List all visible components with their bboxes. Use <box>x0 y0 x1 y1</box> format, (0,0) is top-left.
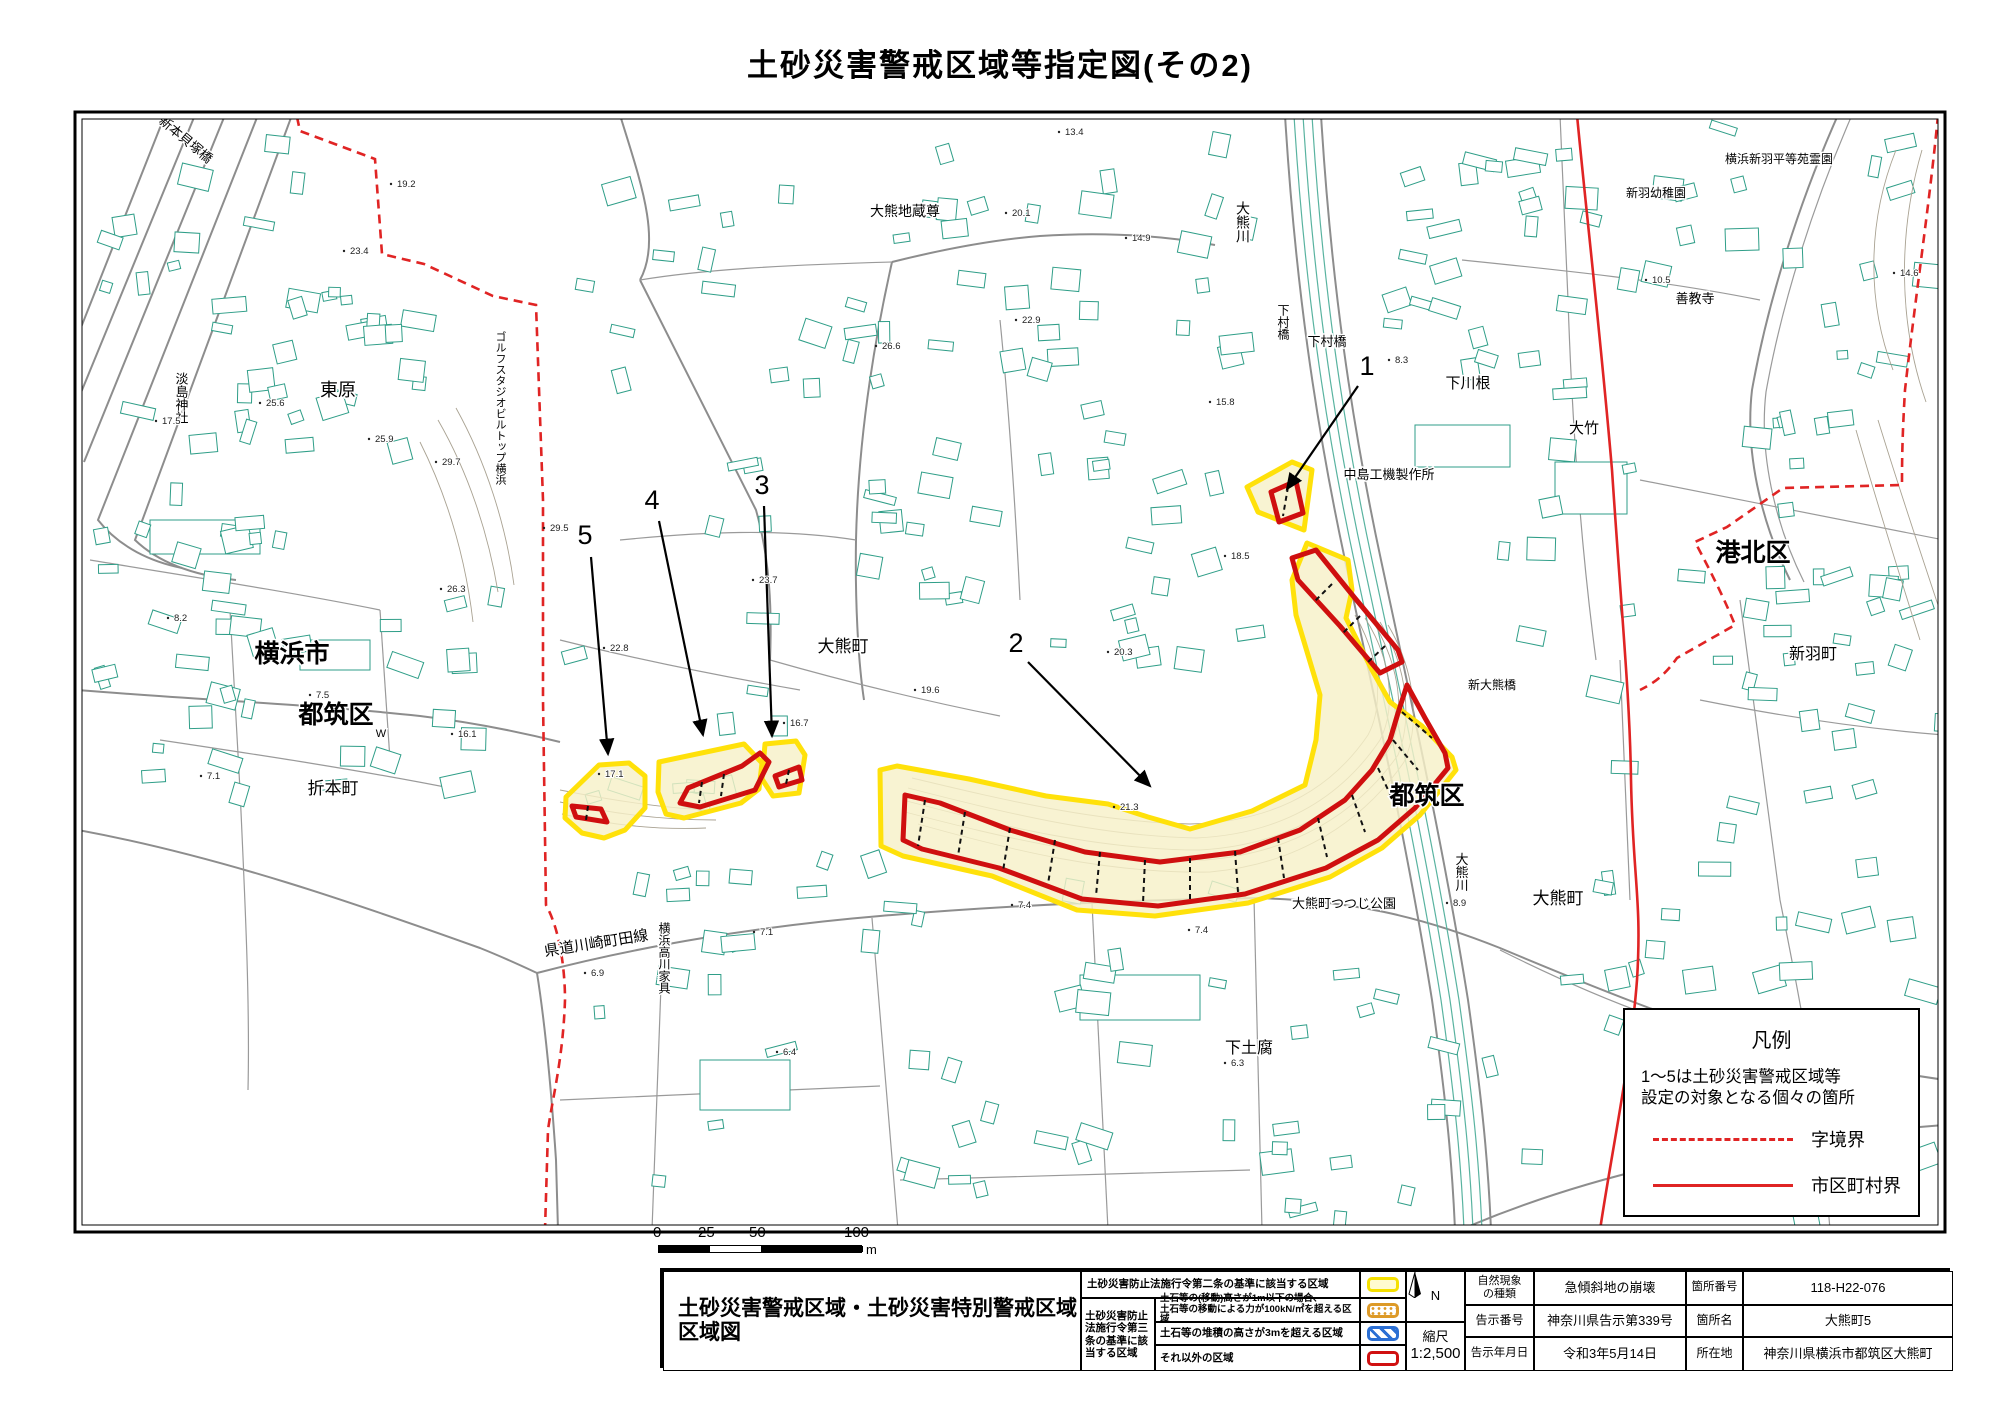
spot-height-label: 6.9 <box>591 968 604 979</box>
spot-height-label: 16.7 <box>790 718 809 729</box>
spot-height-label: 13.4 <box>1065 127 1084 138</box>
map-label: 下土腐 <box>1225 1039 1273 1057</box>
spot-height-label: 8.9 <box>1453 898 1466 909</box>
swatch-red-cell <box>1360 1345 1406 1371</box>
notice-date-value-cell: 令和3年5月14日 <box>1534 1337 1686 1371</box>
spot-height-label: 17.5 <box>162 416 181 427</box>
spot-height-label: 26.3 <box>447 584 466 595</box>
location-label-cell: 所在地 <box>1686 1337 1743 1371</box>
map-label: W <box>376 728 387 740</box>
map-label: 下川根 <box>1445 375 1490 392</box>
north-arrow-icon <box>1407 1272 1423 1298</box>
spot-height-label: 7.1 <box>207 771 220 782</box>
site-no-label-cell: 箇所番号 <box>1686 1271 1743 1305</box>
map-label: 横浜高川家具 <box>657 922 671 994</box>
map-label: 大熊川 <box>1454 853 1469 892</box>
spot-height-label: 7.5 <box>316 690 329 701</box>
dashed-line-sample <box>1653 1138 1793 1141</box>
north-arrow-cell: N <box>1406 1271 1465 1322</box>
site-no-value-cell: 118-H22-076 <box>1743 1271 1953 1305</box>
map-label: 横浜新羽平等苑霊園 <box>1725 151 1833 166</box>
spot-height-label: 29.7 <box>442 457 461 468</box>
map-label: 大熊町 <box>1533 889 1584 908</box>
spot-height-label: 25.6 <box>266 398 285 409</box>
spot-height-label: 17.1 <box>605 769 624 780</box>
article3-row2-cell: 土石等の堆積の高さが3mを超える区域 <box>1155 1322 1360 1345</box>
map-label: 都筑区 <box>1388 781 1464 810</box>
map-label: 下村橋 <box>1307 334 1346 349</box>
legend-title: 凡例 <box>1625 1024 1918 1053</box>
spot-height-label: 18.5 <box>1231 551 1250 562</box>
spot-height-label: 15.8 <box>1216 397 1235 408</box>
swatch-yellow-cell <box>1360 1271 1406 1298</box>
phenomenon-value-cell: 急傾斜地の崩壊 <box>1534 1271 1686 1305</box>
notice-no-label-cell: 告示番号 <box>1465 1305 1534 1337</box>
spot-height-label: 23.4 <box>350 246 369 257</box>
yellow-zone-swatch <box>1367 1277 1399 1292</box>
article3-row1-cell: 土石等の(移動)高さが1m以下の場合、土石等の移動による力が100kN/㎡を超え… <box>1155 1298 1360 1322</box>
spot-height-label: 14.6 <box>1900 268 1919 279</box>
solid-line-sample <box>1653 1184 1793 1187</box>
spot-height-label: 6.4 <box>783 1047 796 1058</box>
info-table: 土砂災害警戒区域・土砂災害特別警戒区域区域図 土砂災害防止法施行令第二条の基準に… <box>660 1268 1950 1368</box>
map-label: 都筑区 <box>297 700 373 729</box>
map-label: 大熊町つつじ公園 <box>1292 896 1396 911</box>
scale-bar-segments <box>658 1245 862 1253</box>
spot-height-label: 16.1 <box>458 729 477 740</box>
spot-height-label: 10.5 <box>1652 275 1671 286</box>
map-label: 東原 <box>320 380 356 400</box>
map-label: 横浜市 <box>254 639 329 668</box>
map-label: 港北区 <box>1715 538 1790 567</box>
map-label: 大熊地蔵尊 <box>870 203 940 219</box>
legend-row-municipal: 市区町村界 <box>1625 1170 1918 1200</box>
spot-height-label: 6.3 <box>1231 1058 1244 1069</box>
legend-box: 凡例 1〜5は土砂災害警戒区域等 設定の対象となる個々の箇所 字境界 市区町村界 <box>1623 1008 1920 1217</box>
blue-hatched-swatch <box>1367 1326 1399 1341</box>
spot-height-label: 8.2 <box>174 613 187 624</box>
callout-number: 3 <box>754 470 769 500</box>
map-label: 大竹 <box>1569 420 1599 437</box>
phenomenon-label-cell: 自然現象 の種類 <box>1465 1271 1534 1305</box>
location-value-cell: 神奈川県横浜市都筑区大熊町 <box>1743 1337 1953 1371</box>
swatch-orange-cell <box>1360 1298 1406 1322</box>
site-name-label-cell: 箇所名 <box>1686 1305 1743 1337</box>
map-label: 大熊町 <box>818 637 869 656</box>
spot-height-label: 29.5 <box>550 523 569 534</box>
swatch-blue-cell <box>1360 1322 1406 1345</box>
map-label: 中島工機製作所 <box>1343 467 1434 482</box>
red-outline-swatch <box>1367 1351 1399 1366</box>
callout-number: 2 <box>1008 628 1023 658</box>
scale-bar: 0 25 50 100 m <box>648 1224 908 1266</box>
scale-cell: 縮尺 1:2,500 <box>1406 1322 1465 1371</box>
spot-height-label: 8.3 <box>1395 355 1408 366</box>
legend-note: 1〜5は土砂災害警戒区域等 設定の対象となる個々の箇所 <box>1641 1067 1918 1108</box>
orange-dotted-swatch <box>1367 1303 1399 1318</box>
spot-height-label: 22.8 <box>610 643 629 654</box>
callout-number: 5 <box>577 520 592 550</box>
map-label: 下村橋 <box>1276 304 1290 341</box>
map-label: ゴルフスタジオビルトップ横浜 <box>494 330 507 486</box>
callout-number: 4 <box>644 485 659 515</box>
article3-row3-cell: それ以外の区域 <box>1155 1345 1360 1371</box>
map-label: 新大熊橋 <box>1468 677 1516 692</box>
spot-height-label: 7.4 <box>1018 900 1031 911</box>
spot-height-label: 14.9 <box>1132 233 1151 244</box>
article3-group-cell: 土砂災害防止法施行令第三条の基準に該当する区域 <box>1081 1298 1155 1371</box>
spot-height-label: 20.3 <box>1114 647 1133 658</box>
spot-height-label: 23.7 <box>759 575 778 586</box>
spot-height-label: 25.9 <box>375 434 394 445</box>
map-label: 新羽幼稚園 <box>1626 185 1686 200</box>
notice-no-value-cell: 神奈川県告示第339号 <box>1534 1305 1686 1337</box>
spot-height-label: 7.1 <box>760 927 773 938</box>
notice-date-label-cell: 告示年月日 <box>1465 1337 1534 1371</box>
spot-height-label: 26.6 <box>882 341 901 352</box>
site-name-value-cell: 大熊町5 <box>1743 1305 1953 1337</box>
legend-row-aza: 字境界 <box>1625 1124 1918 1154</box>
map-label: 善教寺 <box>1675 291 1714 306</box>
map-label: 折本町 <box>308 779 359 798</box>
spot-height-label: 22.9 <box>1022 315 1041 326</box>
hazard-map-page: 土砂災害警戒区域等指定図(その2) <box>0 0 2000 1414</box>
spot-height-label: 20.1 <box>1012 208 1031 219</box>
map-doc-title-cell: 土砂災害警戒区域・土砂災害特別警戒区域区域図 <box>663 1271 1081 1371</box>
spot-height-label: 19.6 <box>921 685 940 696</box>
callout-number: 1 <box>1359 351 1374 381</box>
map-label: 新羽町 <box>1789 645 1837 663</box>
spot-height-label: 19.2 <box>397 179 416 190</box>
spot-height-label: 7.4 <box>1195 925 1208 936</box>
spot-height-label: 21.3 <box>1120 802 1139 813</box>
map-label: 大熊川 <box>1235 201 1251 243</box>
